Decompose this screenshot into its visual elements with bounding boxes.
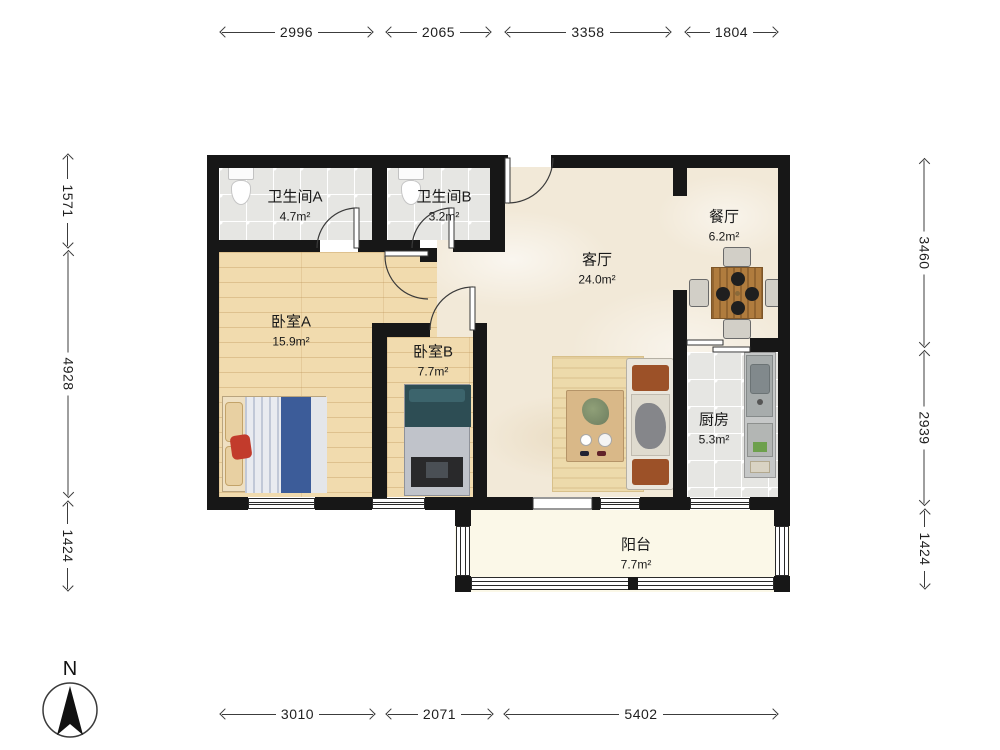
bed-foot-desk <box>411 457 463 487</box>
dim-bottom-1: 3010 <box>221 706 374 722</box>
wall-corridor-jamb <box>420 248 437 262</box>
room-area: 5.3m² <box>699 431 730 448</box>
plate <box>731 272 745 286</box>
bed-edge <box>311 397 327 493</box>
cup <box>598 433 612 447</box>
plate <box>716 287 730 301</box>
toilet <box>228 166 254 206</box>
bedroomA-window <box>248 498 315 509</box>
cup <box>580 434 592 446</box>
wall-bottom <box>207 497 248 510</box>
wall-bath-mid <box>358 240 420 252</box>
stove-detail <box>753 442 767 452</box>
compass-north-label: N <box>62 658 78 681</box>
wall-bottom <box>592 497 600 510</box>
wall-bath-divider <box>372 167 387 240</box>
dim-bottom-2: 2071 <box>387 706 492 722</box>
bedroom-a-label: 卧室A 15.9m² <box>271 311 311 350</box>
balcony-post <box>455 510 471 526</box>
bedroom-b-label: 卧室B 7.7m² <box>413 341 453 380</box>
sofa <box>626 358 674 490</box>
cutting-board <box>750 461 770 473</box>
dim-top-4: 1804 <box>686 24 777 40</box>
room-name: 卫生间B <box>416 186 471 208</box>
room-area: 24.0m² <box>578 271 615 288</box>
plate <box>745 287 759 301</box>
dim-left-1: 1571 <box>60 155 76 247</box>
wall-bathB-right <box>490 167 505 252</box>
room-area: 3.2m² <box>416 208 471 225</box>
room-name: 客厅 <box>578 249 615 271</box>
wall-bedroomB-top <box>372 323 430 337</box>
double-bed <box>222 396 326 492</box>
wall-kitchen-top <box>750 338 778 352</box>
dim-left-3: 1424 <box>60 502 76 590</box>
dim-top-1: 2996 <box>221 24 372 40</box>
plate <box>731 301 745 315</box>
wall-top-right <box>551 155 790 168</box>
sink-unit <box>746 355 773 417</box>
dim-top-2: 2065 <box>387 24 490 40</box>
bed-blue-duvet <box>281 397 311 493</box>
wall-bedroom-divider <box>372 337 387 498</box>
room-area: 15.9m² <box>271 333 311 350</box>
room-name: 厨房 <box>699 409 730 431</box>
toilet-bowl <box>231 180 251 205</box>
dim-right-1: 3460 <box>917 160 933 347</box>
room-area: 7.7m² <box>413 363 453 380</box>
toilet-tank <box>228 166 254 180</box>
wall-bathA-bottom <box>219 240 320 252</box>
remote <box>580 451 589 456</box>
dining-chair <box>723 247 751 267</box>
dim-left-2: 4928 <box>61 252 77 497</box>
balcony-window-right <box>775 526 789 576</box>
dining-table <box>711 267 763 319</box>
dim-bottom-3: 5402 <box>505 706 777 722</box>
wall-dining-stub <box>673 167 687 196</box>
balcony-post <box>455 576 471 592</box>
room-area: 4.7m² <box>267 208 322 225</box>
living-room-label: 客厅 24.0m² <box>578 249 615 288</box>
wall-kitchen-left <box>673 290 687 510</box>
sofa-throw <box>635 403 666 449</box>
red-pillow <box>229 434 252 461</box>
balcony-post <box>774 576 790 592</box>
faucet <box>757 399 763 405</box>
room-name: 卧室A <box>271 311 311 333</box>
balcony-post <box>774 510 790 526</box>
kitchen-window <box>690 498 750 509</box>
sofa-cushion <box>632 365 669 391</box>
wall-bottom <box>425 497 533 510</box>
wall-bottom <box>750 497 790 510</box>
bed-pillow <box>409 389 465 402</box>
dining-room-label: 餐厅 6.2m² <box>709 206 740 245</box>
dim-top-3: 3358 <box>506 24 670 40</box>
balcony-door-threshold <box>533 498 592 509</box>
wall-right <box>778 155 790 510</box>
coffee-table <box>566 390 624 462</box>
wall-top-left <box>207 155 508 168</box>
single-bed <box>404 384 470 496</box>
room-name: 卫生间A <box>267 186 322 208</box>
stove <box>747 423 773 457</box>
plant <box>582 398 609 425</box>
balcony-window-left <box>456 526 470 576</box>
bathroom-a-label: 卫生间A 4.7m² <box>267 186 322 225</box>
floorplan-canvas: N 卫生间A 4.7m² 卫生间B 3.2m² 卧室A 15.9m² 卧室B 7… <box>0 0 1000 750</box>
bathroom-b-label: 卫生间B 3.2m² <box>416 186 471 225</box>
table-center <box>735 291 740 296</box>
livingroom-window <box>600 498 640 509</box>
room-name: 阳台 <box>621 534 652 556</box>
wall-left <box>207 155 219 510</box>
room-area: 6.2m² <box>709 228 740 245</box>
bedroomB-window <box>372 498 425 509</box>
desk-item <box>426 462 448 478</box>
sink <box>750 364 770 394</box>
dining-chair <box>723 319 751 339</box>
compass-needle-icon <box>57 686 83 735</box>
compass-circle <box>43 683 97 737</box>
room-name: 卧室B <box>413 341 453 363</box>
dining-chair <box>689 279 709 307</box>
dim-right-2: 2939 <box>917 352 933 505</box>
dim-right-3: 1424 <box>917 510 933 588</box>
wall-bottom <box>315 497 372 510</box>
sofa-cushion <box>632 459 669 485</box>
toilet-tank <box>398 166 424 180</box>
wall-bedroomB-right <box>473 323 487 498</box>
kitchen-label: 厨房 5.3m² <box>699 409 730 448</box>
balcony-mullion <box>628 577 638 590</box>
remote <box>597 451 606 456</box>
kitchen-counter <box>744 352 776 478</box>
balcony-window-front <box>471 577 774 590</box>
balcony-label: 阳台 7.7m² <box>621 534 652 573</box>
room-name: 餐厅 <box>709 206 740 228</box>
room-area: 7.7m² <box>621 556 652 573</box>
